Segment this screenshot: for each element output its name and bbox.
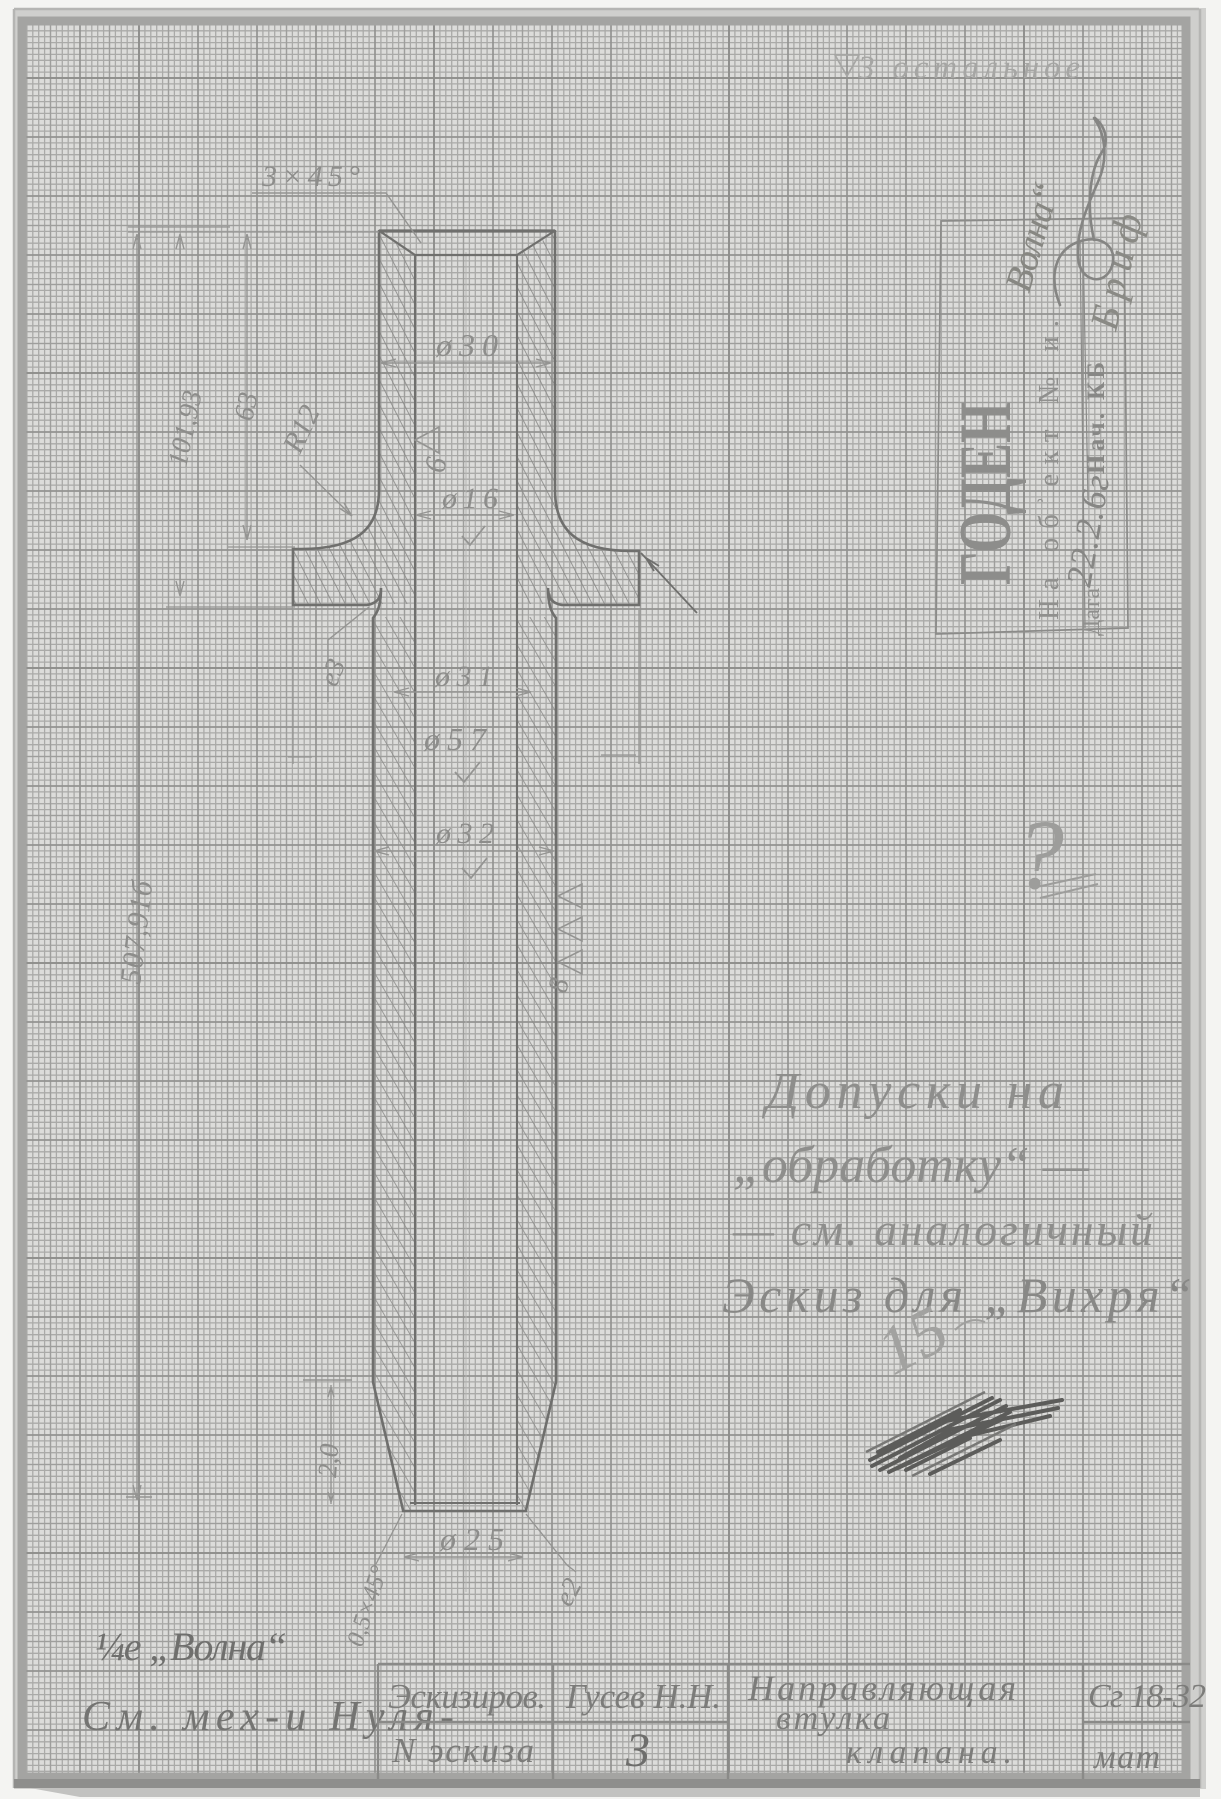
svg-text:Гусев Н.Н.: Гусев Н.Н. bbox=[565, 1677, 721, 1716]
svg-text:„обработку“ —: „обработку“ — bbox=[733, 1137, 1090, 1194]
svg-text:клапана.: клапана. bbox=[846, 1734, 1012, 1771]
svg-text:3: 3 bbox=[625, 1724, 650, 1777]
svg-text:Допуски на: Допуски на bbox=[761, 1063, 1064, 1120]
svg-text:— см. аналогичный: — см. аналогичный bbox=[732, 1204, 1153, 1255]
svg-text:ø25: ø25 bbox=[439, 1521, 504, 1557]
svg-text:втулка: втулка bbox=[776, 1700, 890, 1737]
svg-text:Эскиз для „Вихря“: Эскиз для „Вихря“ bbox=[722, 1267, 1192, 1323]
svg-text:N эскиза: N эскиза bbox=[391, 1731, 534, 1770]
svg-text:Эскизиров.: Эскизиров. bbox=[388, 1677, 546, 1716]
svg-text:ø32: ø32 bbox=[435, 817, 494, 850]
svg-text:Сг 18-32: Сг 18-32 bbox=[1088, 1678, 1206, 1715]
svg-text:Нач. КБ: Нач. КБ bbox=[1083, 362, 1110, 474]
svg-text:2,0: 2,0 bbox=[312, 1442, 344, 1478]
svg-text:ø57: ø57 bbox=[423, 721, 488, 757]
svg-text:Дата: Дата bbox=[1079, 588, 1105, 636]
svg-text:¼е „Волна“: ¼е „Волна“ bbox=[95, 1624, 287, 1669]
svg-text:ø16: ø16 bbox=[441, 482, 498, 515]
svg-text:ø30: ø30 bbox=[435, 327, 498, 363]
svg-text:мат: мат bbox=[1093, 1739, 1160, 1776]
svg-text:ø31: ø31 bbox=[434, 660, 493, 693]
svg-text:ГОДЕН: ГОДЕН bbox=[945, 402, 1027, 585]
